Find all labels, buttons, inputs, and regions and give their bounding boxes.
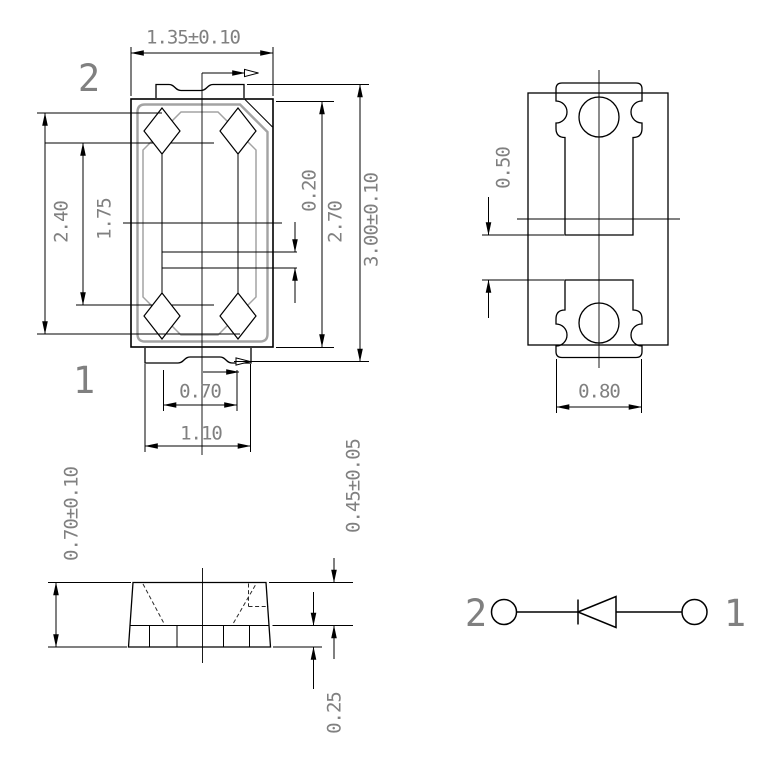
circuit-symbol-view: 2 1 (465, 592, 746, 635)
pin-1-label: 1 (73, 359, 95, 402)
led-package-drawing: 1.35±0.10 2.40 1.75 0.20 2.70 3.00±0.10 … (0, 0, 761, 772)
open-arrowhead-icon (245, 69, 259, 76)
diode-triangle (578, 597, 616, 628)
dim-pad-gap-label: 0.50 (493, 147, 515, 189)
dim-overall-length-label: 3.00±0.10 (361, 172, 383, 267)
bottom-electrode-tab (145, 348, 251, 363)
dim-body-width-label: 1.35±0.10 (146, 27, 241, 49)
dim-cavity-length-label: 2.40 (51, 201, 73, 243)
terminal-circle (682, 600, 707, 625)
dim-body-length-label: 2.70 (325, 201, 347, 243)
pin-2-label: 2 (78, 57, 100, 100)
pad-layout-view: 0.50 0.80 (482, 70, 680, 413)
dim-inner-step-label: 0.20 (299, 170, 321, 212)
hidden-edge (143, 584, 164, 623)
dim-notch-width-label: 0.70 (179, 381, 221, 403)
dim-cavity-inner-label: 1.75 (94, 198, 116, 240)
terminal-circle (492, 600, 517, 625)
dim-pad-width-label: 0.80 (578, 381, 620, 403)
dim-total-height-label: 0.70±0.10 (61, 466, 83, 561)
circuit-pin-1-label: 1 (724, 592, 746, 635)
dim-tab-width-label: 1.10 (180, 423, 222, 445)
top-electrode-tab (156, 85, 244, 99)
dim-top-height-label: 0.45±0.05 (343, 439, 365, 533)
top-view: 1.35±0.10 2.40 1.75 0.20 2.70 3.00±0.10 … (37, 27, 383, 455)
hidden-edge (234, 584, 257, 623)
side-view: 0.70±0.10 0.45±0.05 0.25 (48, 439, 365, 734)
circuit-pin-2-label: 2 (465, 592, 487, 635)
dim-base-height-label: 0.25 (324, 692, 346, 734)
